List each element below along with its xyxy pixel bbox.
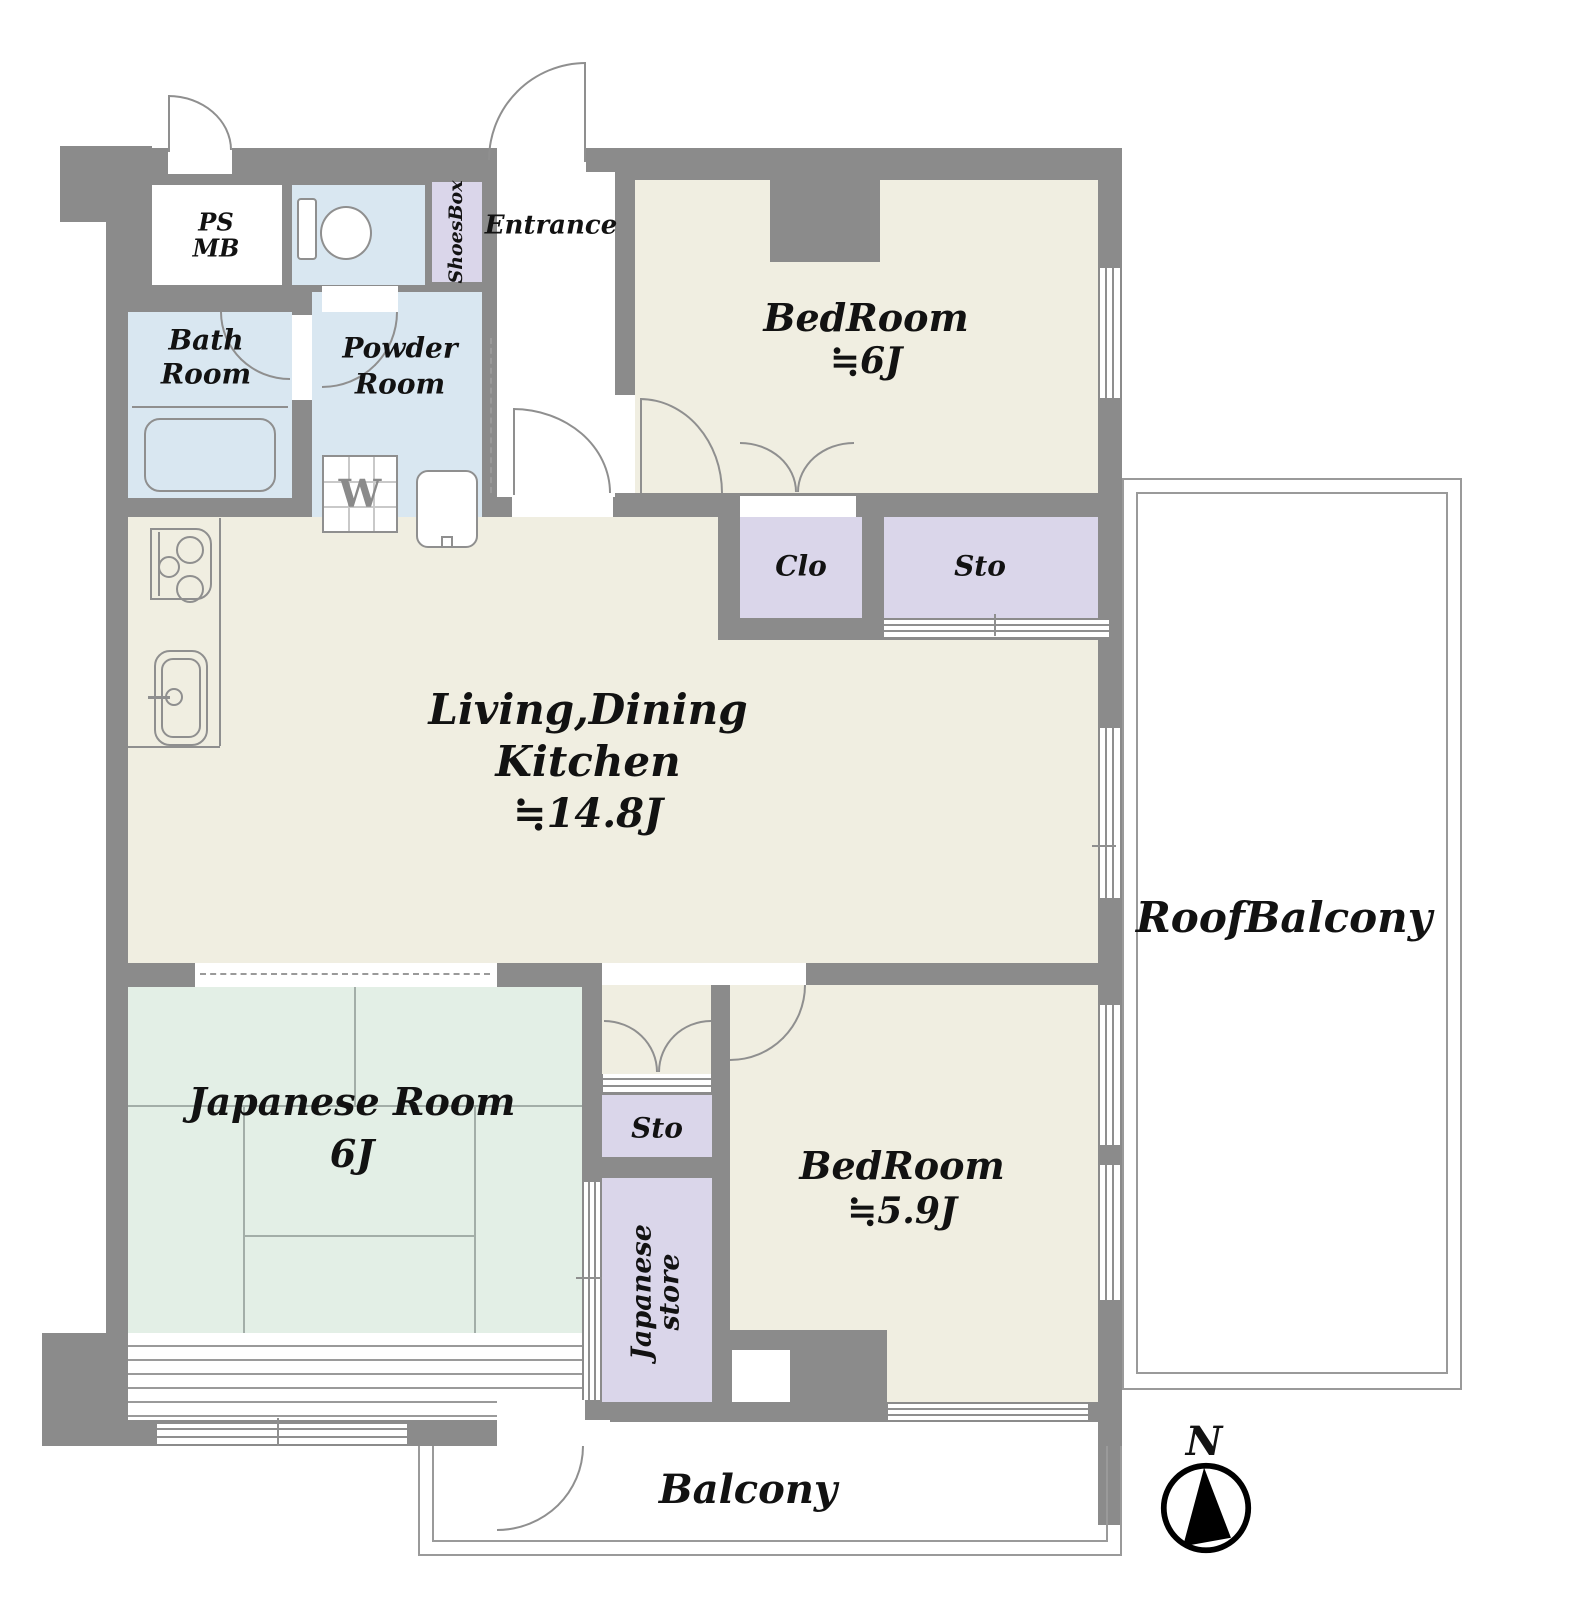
room-bedroom-se-lower: [887, 1330, 1098, 1402]
window-japanese-store-side: [584, 1182, 600, 1400]
sto-lower-sliding-door: [603, 1074, 711, 1092]
window-ldk: [1100, 728, 1120, 898]
label-sto-lower: Sto: [631, 1113, 683, 1142]
label-powder-2: Room: [355, 369, 445, 398]
japanese-room-sliding-opening: [195, 963, 497, 987]
bath-door-opening: [292, 315, 312, 400]
label-sto-upper: Sto: [954, 551, 1006, 580]
label-balcony: Balcony: [659, 1469, 837, 1511]
label-bedroom-se: BedRoom: [799, 1146, 1004, 1186]
toilet-door-opening: [168, 148, 232, 174]
label-ps: PS: [198, 209, 233, 234]
window-bedroom-se-1: [1100, 1005, 1120, 1145]
japanese-room-fusuma-dash: [200, 973, 490, 975]
tatami-line: [243, 1235, 476, 1237]
toilet-door-swing: [168, 95, 232, 150]
label-ldk-2: Kitchen: [495, 740, 680, 784]
toilet-bowl-icon: [320, 206, 372, 260]
bedroom-se-door-opening: [711, 963, 806, 985]
tatami-line: [243, 1107, 245, 1333]
compass-icon: [1158, 1460, 1254, 1556]
kitchen-counter-edge-v: [219, 518, 221, 746]
bedroom-ne-door-opening: [615, 395, 635, 493]
toilet-tank-icon: [297, 198, 317, 260]
wall-pillar-top-left: [60, 146, 152, 222]
entrance-door-leaf: [584, 62, 586, 162]
label-japanese-store-1: Japanese: [627, 1224, 658, 1360]
powder-door-opening: [322, 286, 398, 312]
wall-bedroom-ne-notch: [770, 180, 880, 262]
label-powder-1: Powder: [342, 333, 457, 362]
clo-door-opening: [740, 496, 856, 517]
label-japanese-room: Japanese Room: [189, 1082, 516, 1122]
wall-niche-square: [732, 1350, 790, 1402]
alcove-opening: [602, 963, 711, 985]
label-ldk-size: ≒14.8J: [513, 793, 663, 835]
window-veranda-south: [157, 1424, 407, 1444]
stove-burner-icon: [158, 556, 180, 578]
label-entrance: Entrance: [485, 212, 618, 239]
stove-burner-icon: [176, 536, 204, 564]
sto-sliding-door: [884, 620, 1109, 637]
compass-north-label: N: [1186, 1421, 1223, 1463]
hall-ldk-opening: [512, 497, 613, 517]
kitchen-counter-edge-h: [128, 746, 220, 748]
label-bath-2: Room: [161, 359, 251, 388]
label-bedroom-se-size: ≒5.9J: [847, 1193, 957, 1231]
washing-machine-label: W: [339, 474, 382, 514]
label-ldk-1: Living,Dining: [428, 688, 747, 732]
bedroom-ne-door-leaf: [640, 398, 642, 493]
stove-burner-icon: [176, 575, 204, 603]
tatami-line: [474, 1107, 476, 1333]
label-roof-balcony: RoofBalcony: [1136, 896, 1432, 940]
powder-tap-icon: [441, 536, 453, 548]
balcony-door-opening: [497, 1400, 585, 1420]
hall-door-leaf: [513, 408, 515, 495]
window-bedroom-se-2: [1100, 1165, 1120, 1300]
label-japanese-store-2: store: [655, 1253, 686, 1330]
bathtub-icon: [144, 418, 276, 492]
bath-divider: [132, 406, 288, 408]
label-bath-1: Bath: [168, 325, 243, 354]
toilet-door-leaf: [168, 95, 170, 152]
kitchen-faucet-bar: [148, 696, 170, 699]
entrance-door-swing: [488, 62, 586, 160]
label-mb: MB: [193, 235, 240, 260]
label-bedroom-ne: BedRoom: [763, 298, 968, 338]
hall-threshold-dash: [490, 338, 492, 493]
label-japanese-store: Japanese store: [629, 1224, 686, 1360]
window-bedroom-ne: [1100, 268, 1120, 398]
label-bedroom-ne-size: ≒6J: [830, 343, 902, 381]
floor-plan: W PS MB Entrance ShoesBox Bath Room Powd…: [0, 0, 1591, 1608]
window-bedroom-se-south: [888, 1404, 1088, 1420]
label-japanese-room-size: 6J: [330, 1134, 374, 1174]
label-shoes-box: ShoesBox: [447, 180, 467, 283]
label-clo: Clo: [775, 551, 827, 580]
